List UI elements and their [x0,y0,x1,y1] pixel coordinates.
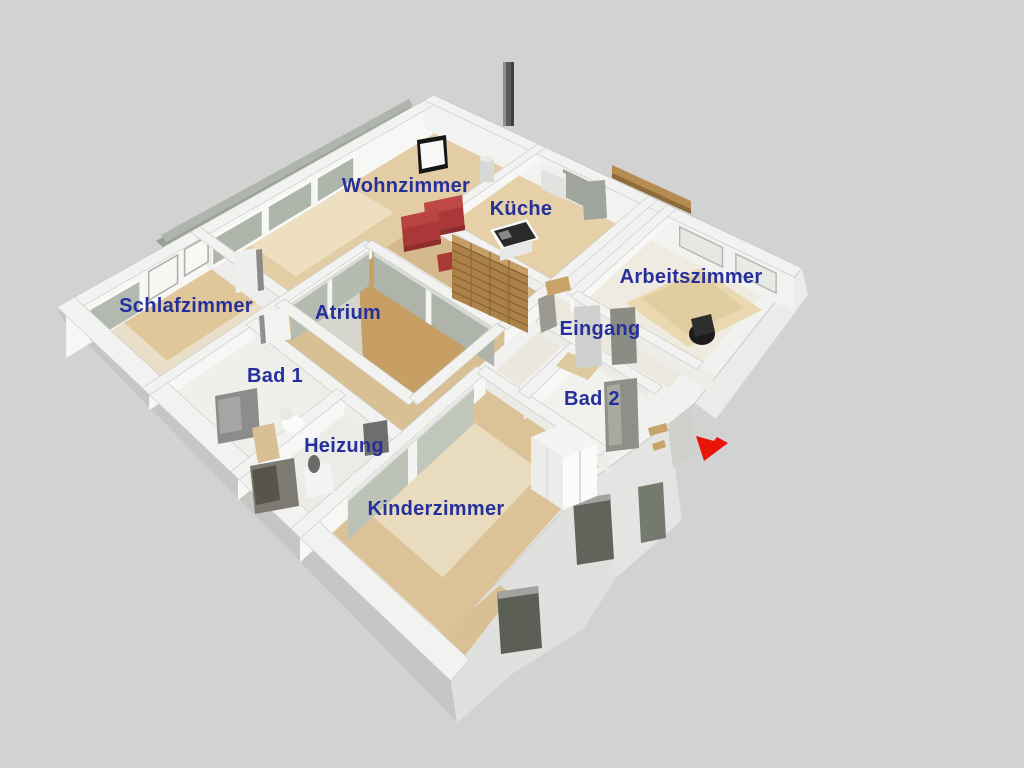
svg-text:Arbeitszimmer: Arbeitszimmer [620,266,763,288]
svg-text:Schlafzimmer: Schlafzimmer [119,295,253,317]
svg-text:Kinderzimmer: Kinderzimmer [368,498,505,520]
svg-text:Atrium: Atrium [315,302,381,324]
svg-text:Heizung: Heizung [304,435,384,457]
svg-text:Küche: Küche [490,198,553,220]
svg-text:Bad 2: Bad 2 [564,388,620,410]
svg-text:Bad 1: Bad 1 [247,365,303,387]
svg-text:Wohnzimmer: Wohnzimmer [342,175,470,197]
svg-text:Eingang: Eingang [560,318,641,340]
